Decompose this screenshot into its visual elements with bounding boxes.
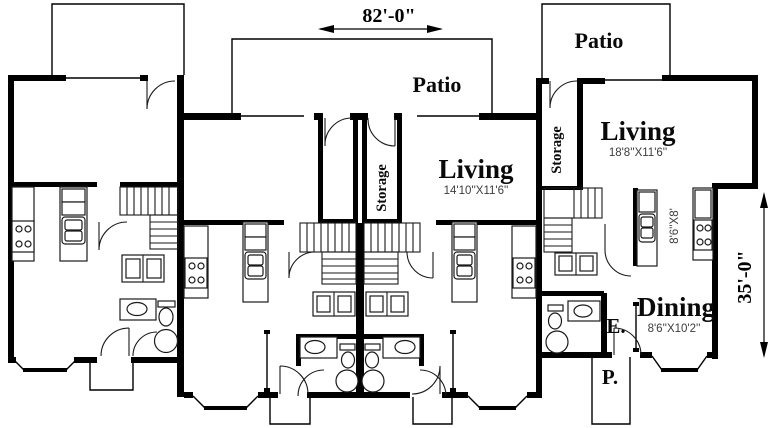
stove-center-left xyxy=(185,258,207,288)
toilet-center-right xyxy=(365,344,380,350)
bathroom-center-right-unit xyxy=(362,337,420,392)
shower-right xyxy=(546,331,568,353)
arrow-right-icon xyxy=(427,25,443,33)
living-center-label: Living xyxy=(438,154,514,184)
toilet-center-left xyxy=(340,344,355,350)
toilet-right xyxy=(548,305,563,311)
porch-center-right xyxy=(413,397,452,424)
bathroom-center-left-unit xyxy=(300,337,358,392)
dining-size: 8'6''X10'2'' xyxy=(648,323,701,335)
door-closet-center-right xyxy=(368,118,395,146)
entry-label: E. xyxy=(606,314,625,338)
stairs-right-unit xyxy=(544,188,602,252)
stove-center-right xyxy=(513,258,535,288)
floor-plan-page: 82'-0" 35'-0" Patio Patio Living 14'10''… xyxy=(0,0,770,428)
shower-left xyxy=(155,330,178,353)
door-bath-left xyxy=(133,332,157,356)
storage-center-label: Storage xyxy=(374,164,390,212)
bay-window-dining xyxy=(652,356,707,370)
floor-plan-drawing: 82'-0" 35'-0" Patio Patio Living 14'10''… xyxy=(0,0,770,428)
door-closet-center-left xyxy=(325,118,352,146)
arrow-down-icon xyxy=(760,342,768,358)
door-hall-center-right xyxy=(407,252,433,278)
width-dimension-label: 82'-0" xyxy=(362,5,415,27)
depth-dimension-label: 35'-0" xyxy=(734,250,756,303)
dimension-width: 82'-0" xyxy=(318,5,443,33)
porch-left-unit xyxy=(90,361,133,390)
door-hall-center-left xyxy=(289,252,315,278)
kitchen-center-left-unit xyxy=(184,222,268,302)
kitchen-right-size: 8'6''X8' xyxy=(669,208,681,244)
living-right-label: Living xyxy=(600,116,676,146)
toilet-left xyxy=(158,301,175,307)
arrow-up-icon xyxy=(760,192,768,208)
door-left-patio xyxy=(147,81,175,109)
door-storage-right xyxy=(550,81,577,108)
bathroom-right-unit xyxy=(546,301,600,353)
storage-right-label: Storage xyxy=(549,126,565,174)
kitchen-center-right-unit xyxy=(452,222,536,302)
stairs-center-left-unit xyxy=(300,223,356,284)
dimension-depth: 35'-0" xyxy=(734,192,768,358)
porch-center-left xyxy=(270,397,310,424)
living-right-size: 18'8''X11'6'' xyxy=(609,147,667,159)
patio-center-label: Patio xyxy=(413,72,462,97)
stove-left-unit xyxy=(12,221,34,252)
door-hall-right xyxy=(605,224,631,276)
shower-center-left xyxy=(336,370,358,392)
dining-label: Dining xyxy=(637,292,716,322)
living-center-size: 14'10''X11'6'' xyxy=(444,185,509,197)
arrow-left-icon xyxy=(318,25,334,33)
patio-right-label: Patio xyxy=(575,28,624,53)
door-left-entry xyxy=(101,328,129,356)
door-kitchen-left xyxy=(99,222,127,250)
stove-right-unit xyxy=(694,220,712,250)
stairs-center-right-unit xyxy=(364,223,420,284)
patio-left-outline xyxy=(52,4,184,77)
shower-center-right xyxy=(362,370,384,392)
stairs-left-unit xyxy=(120,187,178,249)
porch-label: P. xyxy=(602,365,618,389)
kitchen-left-unit xyxy=(12,187,87,261)
